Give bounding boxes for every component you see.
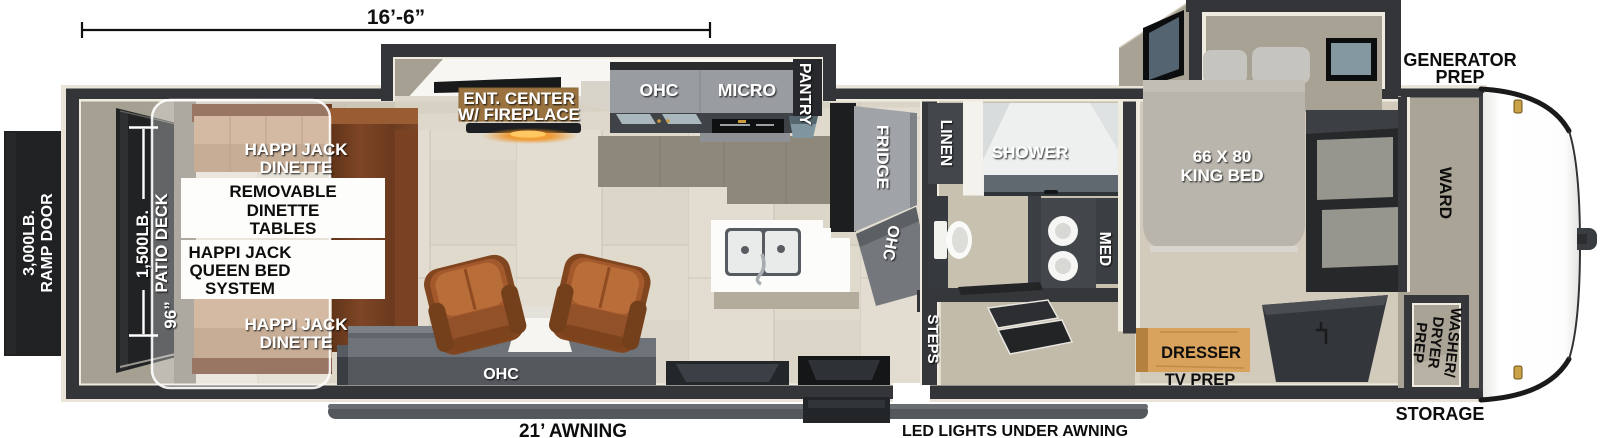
svg-text:STEPS: STEPS bbox=[924, 314, 941, 363]
svg-text:HAPPI JACK: HAPPI JACK bbox=[189, 243, 293, 262]
svg-text:REMOVABLE: REMOVABLE bbox=[229, 182, 336, 201]
svg-text:LINEN: LINEN bbox=[937, 120, 954, 167]
svg-text:STORAGE: STORAGE bbox=[1396, 404, 1485, 424]
svg-text:OHC: OHC bbox=[640, 80, 679, 100]
svg-text:16’-6”: 16’-6” bbox=[367, 6, 425, 29]
svg-text:KING BED: KING BED bbox=[1180, 166, 1263, 185]
svg-text:WARD: WARD bbox=[1436, 167, 1455, 219]
svg-text:DINETTE: DINETTE bbox=[247, 201, 320, 220]
svg-text:LED LIGHTS UNDER AWNING: LED LIGHTS UNDER AWNING bbox=[902, 423, 1128, 438]
svg-text:DRESSER: DRESSER bbox=[1161, 344, 1241, 362]
svg-text:HAPPI JACK: HAPPI JACK bbox=[245, 140, 349, 159]
svg-text:TABLES: TABLES bbox=[250, 219, 317, 238]
svg-text:W/ FIREPLACE: W/ FIREPLACE bbox=[458, 105, 580, 124]
svg-text:DINETTE: DINETTE bbox=[260, 158, 333, 177]
svg-text:PATIO DECK: PATIO DECK bbox=[153, 193, 171, 292]
svg-text:OHC: OHC bbox=[483, 366, 519, 383]
svg-text:96”: 96” bbox=[161, 301, 180, 328]
svg-text:SHOWER: SHOWER bbox=[992, 143, 1069, 162]
svg-text:SYSTEM: SYSTEM bbox=[205, 279, 275, 298]
svg-text:DINETTE: DINETTE bbox=[260, 333, 333, 352]
svg-text:MED: MED bbox=[1096, 232, 1113, 266]
svg-text:HAPPI JACK: HAPPI JACK bbox=[245, 315, 349, 334]
svg-text:FRIDGE: FRIDGE bbox=[873, 125, 892, 189]
svg-text:PREP: PREP bbox=[1435, 67, 1484, 87]
svg-text:66 X 80: 66 X 80 bbox=[1193, 147, 1252, 166]
svg-text:QUEEN BED: QUEEN BED bbox=[189, 261, 290, 280]
svg-text:1,500LB.: 1,500LB. bbox=[134, 210, 152, 278]
svg-text:RAMP DOOR: RAMP DOOR bbox=[39, 193, 56, 293]
svg-text:3,000LB.: 3,000LB. bbox=[21, 210, 38, 276]
svg-text:PANTRY: PANTRY bbox=[796, 63, 813, 126]
svg-text:21’ AWNING: 21’ AWNING bbox=[519, 421, 627, 438]
svg-text:TV PREP: TV PREP bbox=[1165, 371, 1236, 389]
svg-text:MICRO: MICRO bbox=[718, 80, 776, 100]
